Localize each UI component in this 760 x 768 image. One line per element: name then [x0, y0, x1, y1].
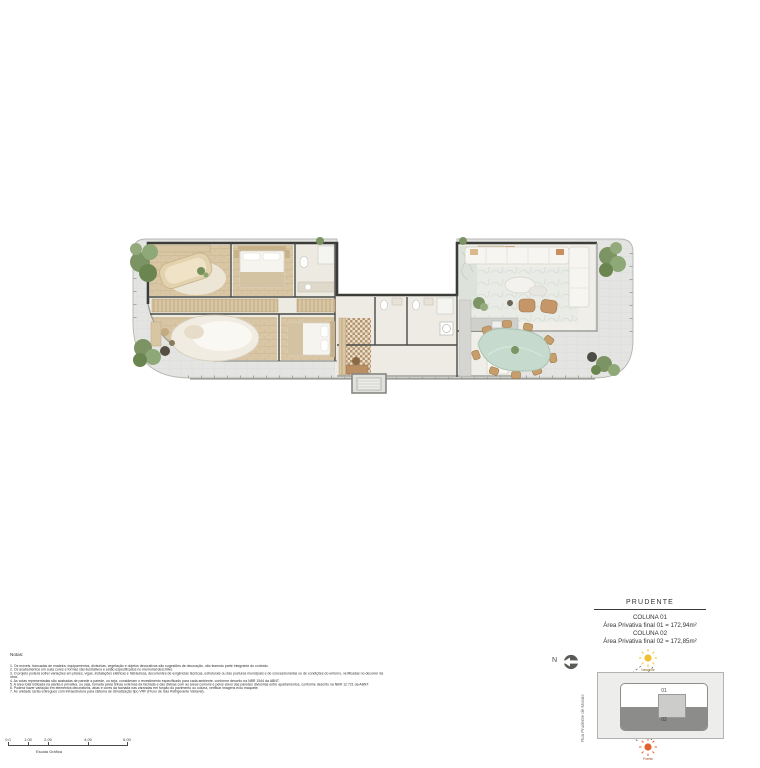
coluna-02-area: Área Privativa final 02 = 172,85m² [588, 638, 712, 646]
column-dot [587, 352, 597, 362]
street-label: Rua Prudente de Morais [580, 684, 590, 744]
floor-plan-sheet: { "title_block": { "project": "PRUDENTE"… [0, 0, 760, 768]
key-plan-core [658, 694, 686, 718]
living-sofa [465, 247, 569, 264]
scale-tick-3: 4,00 [84, 737, 92, 742]
coluna-02-label: COLUNA 02 [588, 630, 712, 638]
scale-bar: 0.0 1,00 2,00 4,00 6,00 Escala Gráfica [8, 738, 138, 758]
sunrise-icon [639, 649, 657, 667]
scale-bar-line [8, 745, 127, 746]
planter-icon-2 [459, 237, 467, 245]
wardrobe-cabinets [152, 299, 335, 312]
key-plan-unit-01-label: 01 [621, 688, 707, 694]
bedroom-3-furniture [288, 321, 335, 357]
key-plan: 01 02 [597, 672, 724, 739]
scale-tick-1: 1,00 [24, 737, 32, 742]
key-plan-unit-02-label: 02 [621, 717, 707, 723]
note-item: 7. As unidade serão entregues com infrae… [10, 690, 386, 694]
notes-heading: Notas: [10, 652, 410, 657]
title-rule [594, 609, 706, 610]
scale-tick-0: 0.0 [5, 737, 11, 742]
compass: N [552, 652, 586, 672]
scale-caption: Escala Gráfica [36, 749, 62, 754]
stairs [352, 374, 386, 393]
sunset-label: Poente [643, 757, 653, 761]
coluna-01-label: COLUNA 01 [588, 614, 712, 622]
bedroom-2-furniture [234, 246, 290, 287]
key-plan-building: 01 02 [620, 683, 708, 731]
project-title: PRUDENTE [588, 599, 712, 606]
planter-icon-1 [316, 237, 324, 245]
title-block: PRUDENTE COLUNA 01 Área Privativa final … [588, 599, 712, 646]
notes-block: Notas: 1. Os móveis, bancadas de madeira… [10, 652, 410, 727]
sunset-icon [639, 738, 657, 756]
sunrise-label: Nascente [641, 668, 654, 672]
north-letter: N [552, 657, 557, 664]
scale-tick-4: 6,00 [123, 737, 131, 742]
coluna-01-area: Área Privativa final 01 = 172,94m² [588, 622, 712, 630]
scale-tick-2: 2,00 [44, 737, 52, 742]
notes-list: 1. Os móveis, bancadas de madeira, equip… [10, 664, 386, 694]
